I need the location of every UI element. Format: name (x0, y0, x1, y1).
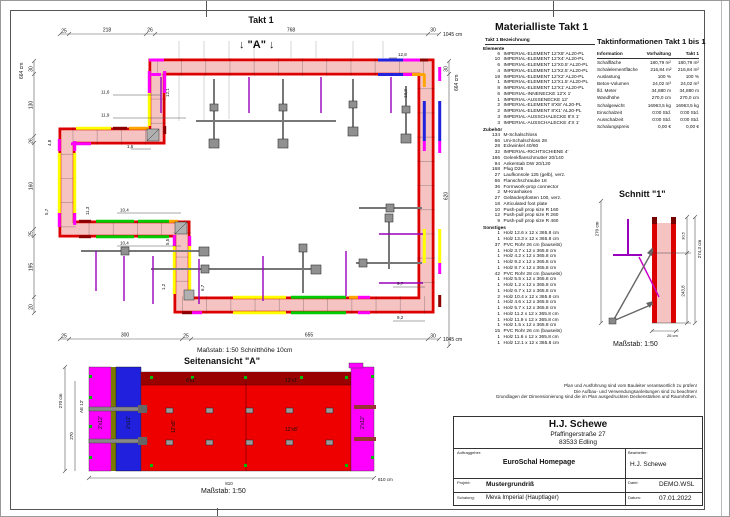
dim-label: 30 (430, 334, 436, 340)
plan-drawing: 25 218 26 768 30 1045 cm 664 cm 30 130 2… (19, 28, 462, 349)
auftraggeber-value: EuroSchal Homepage (464, 459, 614, 466)
dim-label: 1045 cm (443, 32, 462, 38)
filler-dim: 11,9 (101, 113, 110, 118)
schalung-value: Meva Imperial (Hauptlager) (486, 495, 559, 501)
dim-label: 274,3 cm (697, 239, 702, 258)
element-label: 12'x8' (285, 427, 298, 433)
material-list-items: 134M-Schalschloss66Uni-Schalschloss 2828… (483, 133, 603, 225)
disclaimer-notes: Plan und Ausführung sind vom Bauleiter v… (417, 383, 697, 400)
dim-label: 25 (183, 334, 189, 340)
dim-label: 26 (29, 138, 35, 144)
schnitt-drawing: 270 cm 274,3 cm 30,5 243,8 26 cm (595, 199, 703, 338)
dim-label: 620 (444, 192, 450, 201)
dim-label: 30 (29, 66, 35, 72)
filler-dim: 10,4 (120, 208, 129, 213)
dim-label: 130 (29, 101, 35, 110)
bearbeiter-value: H.J. Schewe (630, 461, 667, 468)
filler-dim: 5,5 (165, 238, 170, 245)
col-vorhaltung: Vorhaltung (637, 50, 671, 58)
side-view-title: Seitenansicht "A" (184, 356, 260, 366)
dim-label: 300 (121, 333, 130, 339)
material-list-title: Materialliste Takt 1 (495, 21, 603, 33)
takt-info-row: lfd. Meter34,880 m34,880 m (597, 87, 699, 94)
element-label: 8'x1' (186, 378, 196, 384)
dim-label: 655 (305, 333, 314, 339)
schnitt-scale: Maßstab: 1:50 (613, 341, 658, 348)
section-marker-a: ↓ "A" ↓ (239, 39, 275, 51)
datei-value: DEMO.WSL (659, 481, 694, 488)
company-city: 83533 Edling (454, 439, 702, 446)
plan-scale-note: Maßstab: 1:50 Schnitthöhe 10cm (197, 347, 292, 354)
dim-label: 30,5 (681, 231, 686, 240)
filler-dim: 11,6 (101, 90, 110, 95)
material-list: Materialliste Takt 1 Takt 1 Bezeichnung … (483, 21, 603, 346)
dim-label: 30 (444, 66, 450, 72)
dim-label: 664 cm (454, 75, 460, 91)
takt-info-title: Taktinformationen Takt 1 bis 1 (597, 37, 699, 46)
takt-info-header-row: Information Vorhaltung Takt 1 (597, 50, 699, 59)
filler-dim: 9,7 (397, 281, 404, 286)
dim-label: 243,8 (681, 285, 686, 297)
material-list-items: 6IMPERIAL-ELEMENT 12'X8' AL20-PL10IMPERI… (483, 52, 603, 127)
dim-label: 160 (29, 182, 35, 191)
dim-label: 26 cm (667, 333, 679, 338)
takt-info-row: Auslastung100 %100 % (597, 73, 699, 80)
dim-label: 195 (29, 263, 35, 272)
element-label: 12'x8' (171, 420, 177, 433)
dim-label: 218 (103, 28, 112, 34)
dim-label: 270 (69, 432, 74, 440)
datei-label: Datei: (628, 480, 638, 485)
dim-label: 768 (287, 28, 296, 34)
bearbeiter-label: Bearbeiter: (628, 450, 648, 455)
dim-label: 20 (29, 304, 35, 310)
company-street: Pfaffingerstraße 27 (454, 431, 702, 438)
element-label: AE 12' (79, 400, 84, 413)
col-takt1: Takt 1 (671, 50, 699, 58)
filler-dim: 12,1 (165, 88, 170, 97)
col-information: Information (597, 50, 637, 58)
datum-value: 07.01.2022 (659, 495, 692, 502)
element-label: 2'x12' (360, 416, 366, 429)
drawing-sheet: 25 218 26 768 30 1045 cm 664 cm 30 130 2… (0, 0, 730, 517)
plan-title: Takt 1 (231, 15, 291, 25)
filler-dim: 10,4 (120, 241, 129, 246)
material-list-item: 3IMPERIAL-AUSSCHALECKE 4'X 1' (483, 121, 603, 127)
takt-info-row: Schalgewicht16963,5 kg16963,5 kg (597, 102, 699, 109)
takt-info-row: Schalfläche180,79 m²180,79 m² (597, 59, 699, 66)
dim-label: 30 (430, 28, 436, 34)
filler-dim: 1,5 (127, 144, 134, 149)
schalung-label: Schalung: (457, 495, 475, 500)
schnitt-title: Schnitt "1" (619, 189, 666, 199)
dim-label: 25 (61, 334, 67, 340)
filler-dim: 5,7 (44, 208, 49, 215)
filler-dim: 13,3 (403, 89, 408, 98)
takt-info-row: Schalungspreis0,00 €0,00 € (597, 123, 699, 130)
material-list-header: Takt 1 Bezeichnung (485, 38, 595, 45)
element-label: 2'x12' (98, 416, 104, 429)
projekt-value: Mustergrundriß (486, 481, 534, 488)
dim-label: 25 (61, 29, 67, 35)
filler-dim: 6,7 (200, 284, 205, 291)
filler-dim: 9,2 (397, 315, 404, 320)
datum-label: Datum: (628, 495, 641, 500)
filler-dim: 1,2 (161, 283, 166, 290)
dim-label: 26 (147, 28, 153, 34)
filler-dim: 12,8 (398, 52, 407, 57)
dim-label: 1045 cm (443, 337, 462, 343)
company-name: H.J. Schewe (454, 419, 702, 430)
takt-info-table: Taktinformationen Takt 1 bis 1 Informati… (597, 37, 699, 130)
dim-label: 810 (225, 481, 233, 486)
takt-info-row: Ausschalzeit0:00 Std.0:00 Std. (597, 116, 699, 123)
takt-info-row: Einschalzeit0:00 Std.0:00 Std. (597, 109, 699, 116)
element-label: 2'x12' (126, 416, 132, 429)
side-view-drawing: 8'x1' 12'x1' 12'x8' 12'x8' 2'x12' 2'x12'… (58, 363, 393, 486)
filler-dim: 4,8 (47, 139, 52, 146)
material-list-item: 9Push-pull prop size R 460 (483, 219, 603, 225)
filler-dim: 11,3 (85, 206, 90, 215)
auftraggeber-label: Auftraggeber: (457, 450, 481, 455)
side-view-scale: Maßstab: 1:50 (201, 488, 246, 495)
material-list-item: 1Holz 12.1 x 12 x 365.8 cm (483, 341, 603, 347)
takt-info-row: Beton-Volumen24,02 m³24,02 m³ (597, 80, 699, 87)
title-block: H.J. Schewe Pfaffingerstraße 27 83533 Ed… (453, 416, 703, 506)
element-label: 12'x1' (285, 378, 298, 384)
material-list-items: 1Holz 12.6 x 12 x 365.8 cm1Holz 13.3 x 1… (483, 231, 603, 346)
dim-label: 810 cm (378, 477, 393, 482)
takt-info-row: Schalelementfläche216,84 m²216,84 m² (597, 66, 699, 73)
note-line: Grundlagen der Dimensionierung sind die … (417, 394, 697, 400)
takt-info-rows: Schalfläche180,79 m²180,79 m²Schalelemen… (597, 59, 699, 130)
takt-info-row: Wandhöhe270,0 cm270,0 cm (597, 94, 699, 101)
dim-label: 25 (29, 231, 35, 237)
projekt-label: Projekt: (457, 480, 471, 485)
dim-label: 270 cm (58, 393, 63, 408)
dim-label: 664 cm (19, 63, 25, 79)
